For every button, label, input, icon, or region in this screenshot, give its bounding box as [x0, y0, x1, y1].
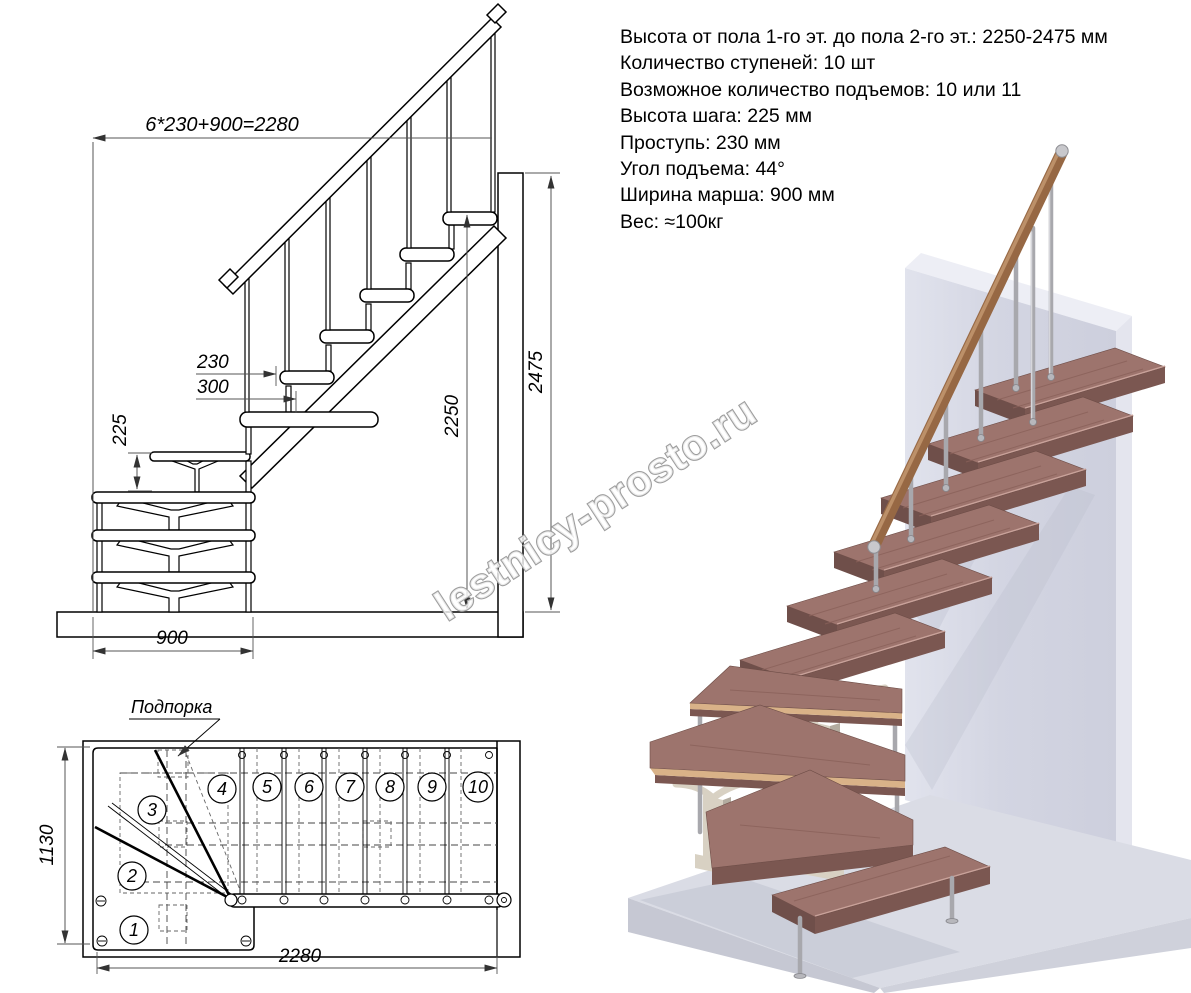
tread	[280, 371, 334, 384]
plan-support-label: Подпорка	[129, 697, 220, 756]
handrail-cap-3d	[1056, 145, 1068, 157]
guard-rail	[92, 572, 255, 583]
plan-fasteners-top	[239, 752, 493, 759]
plan-tread-dividers	[239, 748, 493, 905]
dim-plan-length: 2280	[278, 946, 322, 967]
render-3d	[615, 130, 1191, 993]
platform-tread	[150, 452, 250, 461]
svg-text:8: 8	[385, 777, 395, 797]
step-number-badge: 6	[295, 773, 323, 801]
plan-handrail	[225, 893, 511, 907]
svg-text:6: 6	[304, 777, 315, 797]
dim-tread-depth: 230	[196, 352, 229, 373]
svg-text:7: 7	[345, 777, 356, 797]
dim-total-height: 2475	[526, 350, 547, 394]
svg-text:2: 2	[126, 866, 137, 886]
step-number-badge: 10	[463, 772, 493, 802]
svg-text:10: 10	[468, 777, 488, 797]
elevation-drawing: 6*230+900=2280 230 300 225 2250 2475 900	[0, 0, 600, 700]
handrail-cap-3d	[868, 541, 880, 553]
step-number-badge: 4	[208, 775, 236, 803]
plan-handrail-cap	[497, 893, 511, 907]
tread	[320, 330, 374, 343]
step-number-badge: 2	[118, 862, 146, 890]
dim-step-rise: 225	[110, 414, 131, 447]
tree-ornament	[117, 537, 233, 572]
guard-rail	[92, 530, 255, 541]
tread	[240, 412, 378, 427]
ground-slab	[57, 612, 523, 637]
guard-rail	[92, 492, 255, 503]
step-number-badge: 8	[376, 773, 404, 801]
tread	[360, 289, 414, 302]
dim-clear-height: 2250	[442, 394, 463, 438]
svg-text:4: 4	[217, 779, 227, 799]
svg-text:1: 1	[129, 920, 139, 940]
spec-line: Количество ступеней: 10 шт	[620, 50, 1180, 76]
plan-drawing: 1 2 3 4 5 6 7	[25, 683, 570, 993]
spec-line: Возможное количество подъемов: 10 или 11	[620, 77, 1180, 103]
tread	[443, 212, 497, 225]
stringer-beam	[240, 226, 506, 488]
plan-step-numbers: 1 2 3 4 5 6 7	[118, 772, 493, 944]
step-number-badge: 7	[336, 773, 364, 801]
dim-total-run: 6*230+900=2280	[145, 114, 299, 136]
drawing-sheet: 6*230+900=2280 230 300 225 2250 2475 900	[0, 0, 1191, 993]
svg-text:9: 9	[427, 777, 437, 797]
dim-tread-overlap: 300	[197, 377, 229, 398]
svg-text:3: 3	[147, 800, 157, 820]
step-number-badge: 9	[418, 773, 446, 801]
plan-support-braces	[95, 750, 231, 899]
svg-text:5: 5	[262, 777, 273, 797]
tree-ornament	[117, 579, 233, 612]
tread	[400, 248, 454, 261]
lower-guard-section	[92, 452, 255, 612]
step-number-badge: 5	[253, 773, 281, 801]
handrail-side-view	[219, 4, 506, 294]
step-number-badge: 1	[120, 916, 148, 944]
step-number-badge: 3	[138, 796, 166, 824]
tread-4-winder	[690, 666, 902, 726]
spec-line: Высота от пола 1-го эт. до пола 2-го эт.…	[620, 24, 1180, 50]
support-label-text: Подпорка	[131, 697, 212, 717]
spec-line: Высота шага: 225 мм	[620, 103, 1180, 129]
dim-plan-width: 1130	[37, 824, 58, 865]
dim-march-width: 900	[156, 628, 188, 649]
